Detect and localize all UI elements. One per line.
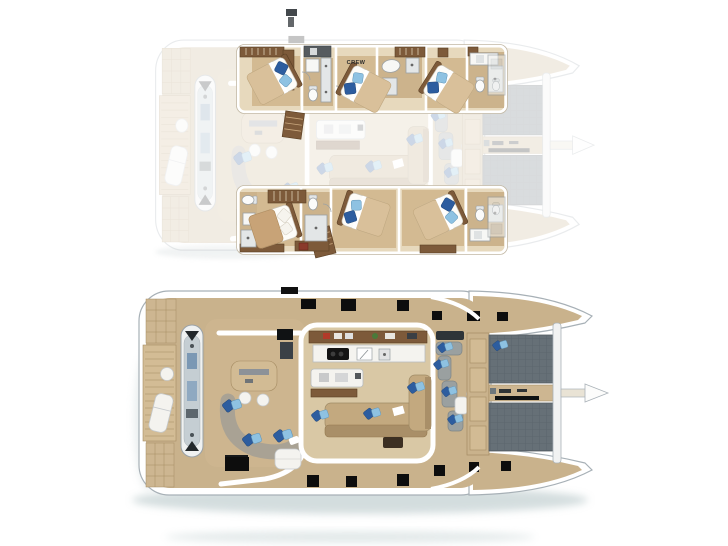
stairs-marker xyxy=(299,243,308,250)
bow-head-starboard xyxy=(488,197,505,237)
main-deck-plan xyxy=(132,287,608,543)
stairs-port xyxy=(282,111,304,139)
rigging-mark xyxy=(286,9,297,16)
rigging-mark xyxy=(288,17,294,27)
main-deck xyxy=(139,287,608,495)
bow-head-port xyxy=(488,55,505,95)
deck-plans-canvas: CREW xyxy=(0,0,728,546)
crew-cabin-label: CREW xyxy=(347,60,366,66)
deck-plans-page: CREW xyxy=(0,0,728,546)
cabin-deck-plan: CREW xyxy=(155,9,594,259)
